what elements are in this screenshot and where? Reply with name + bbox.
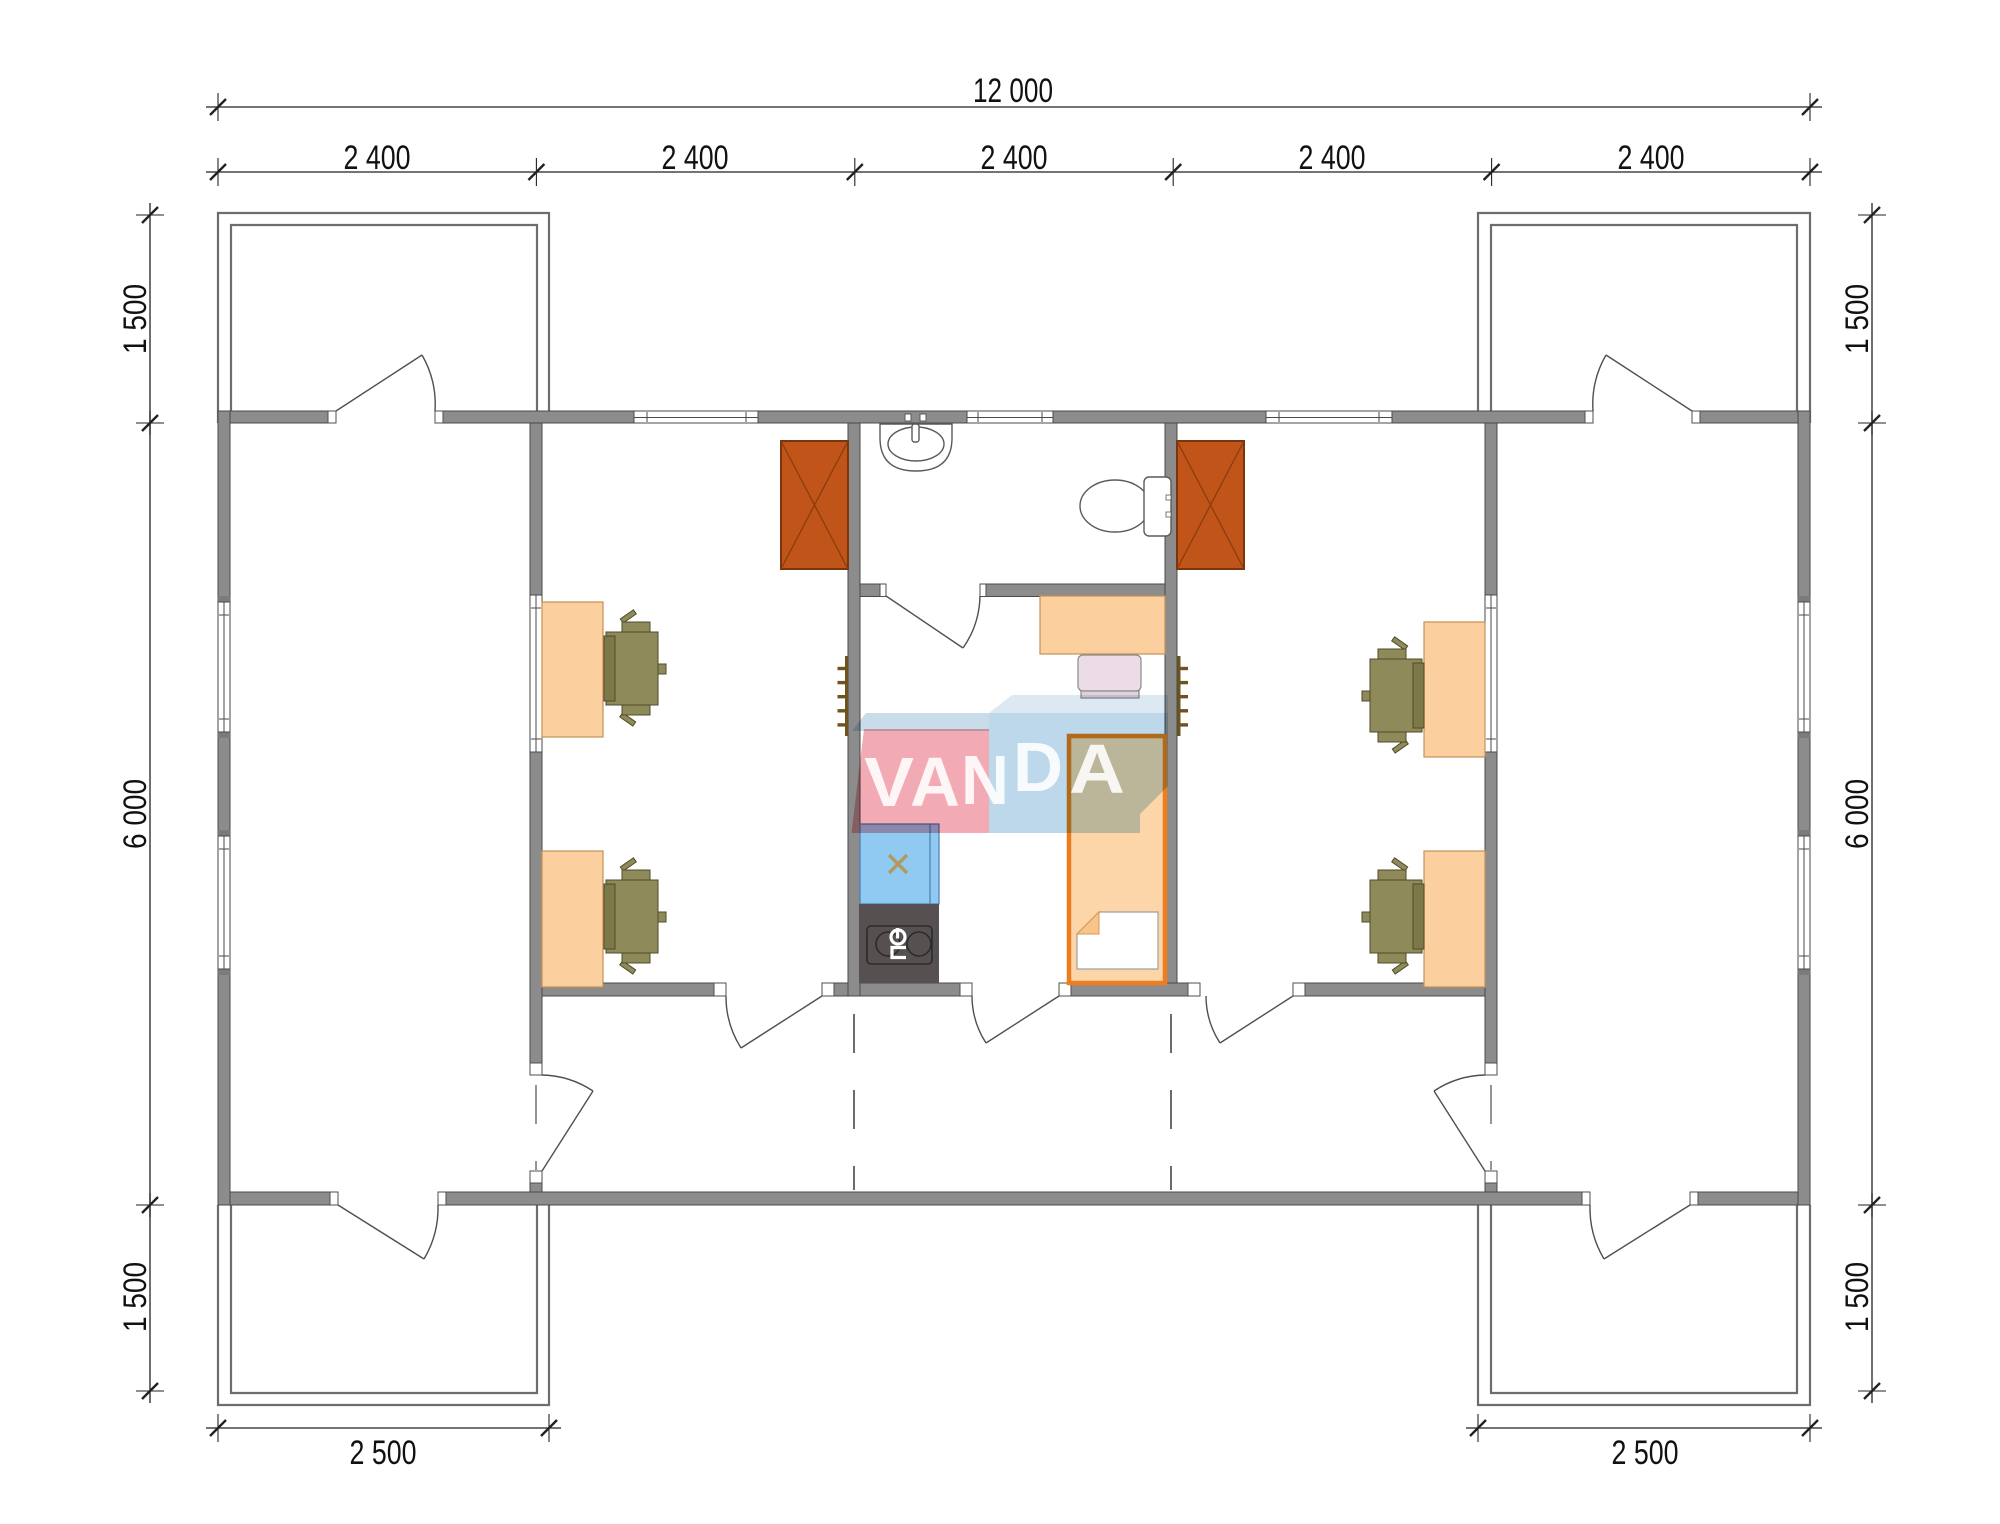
svg-text:1 500: 1 500 — [117, 284, 153, 354]
svg-text:1 500: 1 500 — [117, 1262, 153, 1332]
svg-text:12 000: 12 000 — [973, 72, 1053, 110]
svg-text:2 400: 2 400 — [1618, 139, 1685, 177]
svg-text:N: N — [961, 741, 1009, 819]
svg-text:A: A — [910, 743, 960, 821]
svg-text:A: A — [1069, 730, 1125, 808]
svg-text:1 500: 1 500 — [1839, 284, 1875, 354]
svg-text:2 400: 2 400 — [662, 139, 729, 177]
svg-text:2 400: 2 400 — [344, 139, 411, 177]
svg-text:6 000: 6 000 — [117, 779, 153, 849]
svg-text:V: V — [864, 743, 914, 821]
svg-text:D: D — [1013, 728, 1063, 806]
svg-text:2 400: 2 400 — [981, 139, 1048, 177]
svg-text:6 000: 6 000 — [1839, 779, 1875, 849]
svg-text:1 500: 1 500 — [1839, 1262, 1875, 1332]
svg-text:2 500: 2 500 — [350, 1434, 417, 1472]
svg-text:2 500: 2 500 — [1612, 1434, 1679, 1472]
svg-text:2 400: 2 400 — [1299, 139, 1366, 177]
